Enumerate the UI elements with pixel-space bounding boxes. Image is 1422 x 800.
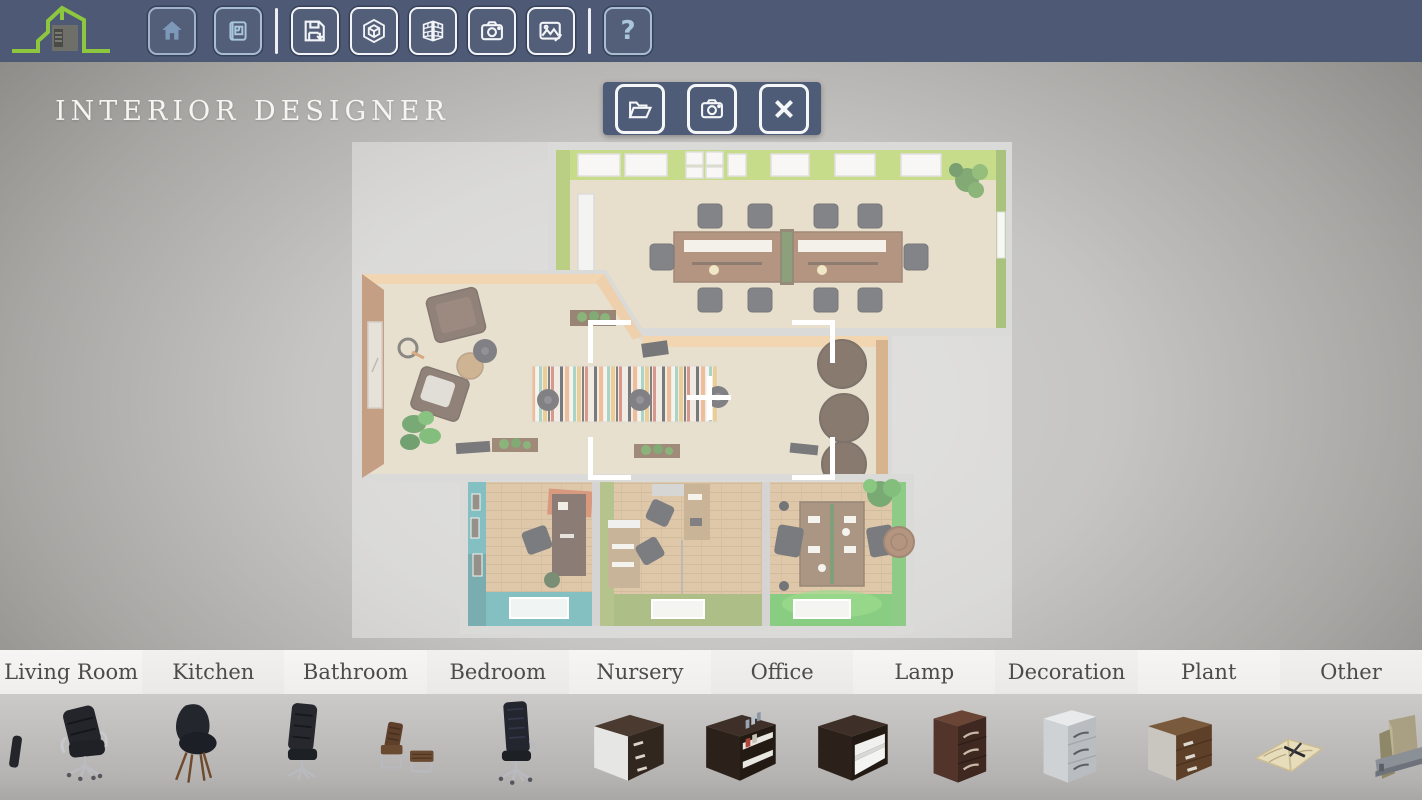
furniture-thumbnail-partial-chair[interactable] xyxy=(0,698,32,792)
furniture-thumbnail-drawer-unit-white[interactable] xyxy=(1013,698,1123,792)
help-button[interactable]: ? xyxy=(604,7,652,55)
close-button[interactable] xyxy=(759,84,809,134)
category-plant[interactable]: Plant xyxy=(1138,650,1280,694)
cube-3d-icon xyxy=(360,17,388,45)
category-other[interactable]: Other xyxy=(1280,650,1422,694)
drawer-unit-white-icon xyxy=(1013,698,1123,792)
camera-icon xyxy=(478,17,506,45)
selection-bracket xyxy=(792,437,835,480)
camera-button[interactable] xyxy=(468,7,516,55)
blueprint-icon xyxy=(225,18,251,44)
furniture-thumbnail-drawer-unit-dark[interactable] xyxy=(903,698,1013,792)
app-window: ? INTERIOR DESIGNER xyxy=(0,0,1422,800)
floorplan[interactable] xyxy=(352,142,1012,638)
category-decoration[interactable]: Decoration xyxy=(995,650,1137,694)
lounge-chair-ottoman-icon xyxy=(355,698,465,792)
furniture-thumbnail-office-armchair[interactable] xyxy=(30,698,140,792)
category-office[interactable]: Office xyxy=(711,650,853,694)
furniture-thumbnail-drawer-cube-white[interactable] xyxy=(573,698,683,792)
close-icon xyxy=(770,95,798,123)
drawer-unit-dark-icon xyxy=(903,698,1013,792)
floating-toolbar xyxy=(603,82,821,135)
furniture-thumbnail-desk-chair[interactable] xyxy=(248,698,358,792)
toolbar-separator xyxy=(588,8,591,54)
category-kitchen[interactable]: Kitchen xyxy=(142,650,284,694)
furniture-thumbnail-open-shelf-cube[interactable] xyxy=(797,698,907,792)
notebook-pen-icon xyxy=(1233,698,1343,792)
furniture-thumbnail-drawer-unit-brown[interactable] xyxy=(1123,698,1233,792)
save-icon xyxy=(301,17,329,45)
category-living-room[interactable]: Living Room xyxy=(0,650,142,694)
top-toolbar: ? xyxy=(0,0,1422,65)
screenshot-button[interactable] xyxy=(687,84,737,134)
drawer-unit-brown-icon xyxy=(1123,698,1233,792)
category-bathroom[interactable]: Bathroom xyxy=(284,650,426,694)
open-folder-icon xyxy=(626,95,654,123)
furniture-thumbnail-highback-office-chair[interactable] xyxy=(461,698,571,792)
open-shelf-cube-icon xyxy=(797,698,907,792)
furniture-thumbnail-shell-chair[interactable] xyxy=(140,698,250,792)
app-logo-icon xyxy=(8,3,116,59)
drawer-cube-white-icon xyxy=(573,698,683,792)
selection-bracket xyxy=(588,320,631,363)
file-folders-icon xyxy=(1343,698,1422,792)
category-nursery[interactable]: Nursery xyxy=(569,650,711,694)
snapshot-edit-button[interactable] xyxy=(527,7,575,55)
home-icon xyxy=(159,18,185,44)
category-lamp[interactable]: Lamp xyxy=(853,650,995,694)
furniture-library xyxy=(0,694,1422,800)
office-armchair-icon xyxy=(30,698,140,792)
selection-bracket xyxy=(588,437,631,480)
view-3d-button[interactable] xyxy=(350,7,398,55)
open-project-button[interactable] xyxy=(615,84,665,134)
question-icon: ? xyxy=(620,16,635,46)
selection-bracket xyxy=(792,320,835,363)
camera-icon xyxy=(698,95,726,123)
partial-chair-icon xyxy=(0,698,32,792)
highback-office-chair-icon xyxy=(461,698,571,792)
crosshair-icon xyxy=(707,376,712,420)
shelf-cube-books-icon xyxy=(685,698,795,792)
shell-chair-icon xyxy=(140,698,250,792)
furniture-thumbnail-file-folders[interactable] xyxy=(1343,698,1422,792)
desk-chair-icon xyxy=(248,698,358,792)
walls-button[interactable] xyxy=(409,7,457,55)
toolbar-separator xyxy=(275,8,278,54)
furniture-thumbnail-lounge-chair-ottoman[interactable] xyxy=(355,698,465,792)
brick-wall-icon xyxy=(419,17,447,45)
image-edit-icon xyxy=(537,17,565,45)
fade-overlay xyxy=(352,142,1012,638)
page-title: INTERIOR DESIGNER xyxy=(55,96,450,127)
viewport[interactable]: INTERIOR DESIGNER xyxy=(0,62,1422,650)
save-button[interactable] xyxy=(291,7,339,55)
floorplan-view-button[interactable] xyxy=(214,7,262,55)
category-bedroom[interactable]: Bedroom xyxy=(427,650,569,694)
category-bar: Living Room Kitchen Bathroom Bedroom Nur… xyxy=(0,650,1422,694)
home-button[interactable] xyxy=(148,7,196,55)
furniture-thumbnail-notebook-pen[interactable] xyxy=(1233,698,1343,792)
furniture-thumbnail-shelf-cube-books[interactable] xyxy=(685,698,795,792)
